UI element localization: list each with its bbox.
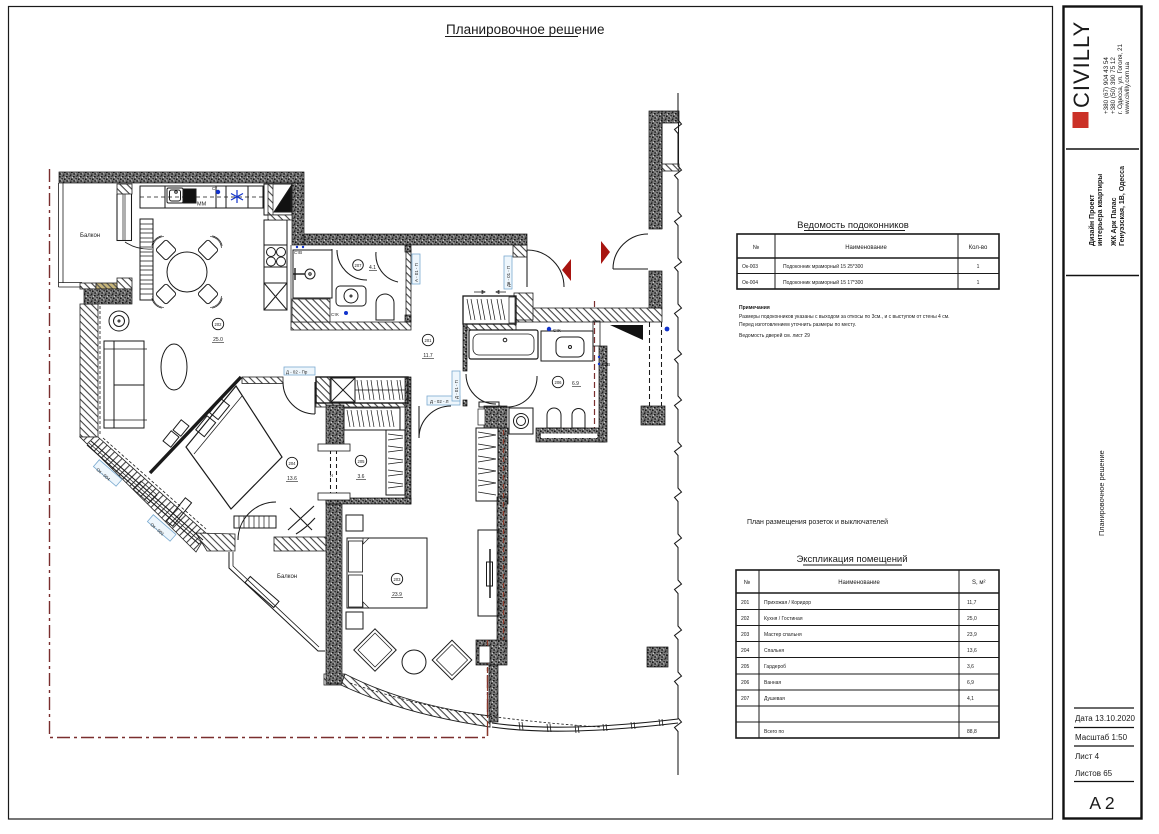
svg-text:Перед изготовлением уточнить р: Перед изготовлением уточнить размеры по … [739,322,856,328]
svg-text:13.6: 13.6 [287,476,297,482]
svg-text:Наименование: Наименование [838,580,880,586]
svg-text:№: № [744,579,750,586]
svg-text:www.civilly.com.ua: www.civilly.com.ua [1124,61,1131,115]
svg-text:СтВ: СтВ [602,362,610,367]
svg-text:202: 202 [741,616,750,622]
svg-text:207: 207 [355,263,363,268]
svg-text:Планировочное решение: Планировочное решение [446,22,604,37]
svg-text:Наименование: Наименование [845,245,887,251]
svg-text:205: 205 [741,664,750,670]
svg-text:206: 206 [741,680,750,686]
svg-text:1: 1 [977,280,980,286]
svg-text:Ведомость подоконников: Ведомость подоконников [797,220,909,231]
svg-text:Масштаб 1:50: Масштаб 1:50 [1075,733,1128,742]
svg-text:203: 203 [394,577,402,582]
svg-text:СтК: СтК [553,328,561,333]
svg-text:Ок-003: Ок-003 [742,264,758,270]
svg-text:Балкон: Балкон [277,574,297,580]
svg-text:3.6: 3.6 [358,474,365,480]
svg-text:Д - 01 - П: Д - 01 - П [454,380,459,399]
svg-text:Ст: Ст [212,186,217,191]
svg-text:Дата 13.10.2020: Дата 13.10.2020 [1075,714,1136,723]
svg-text:н: н [330,473,333,479]
svg-text:Размеры подоконников указаны с: Размеры подоконников указаны с выходом з… [739,314,950,320]
svg-text:203: 203 [741,632,750,638]
svg-text:88,8: 88,8 [967,729,977,735]
svg-text:1: 1 [977,264,980,270]
svg-text:4.1: 4.1 [369,265,376,271]
svg-text:ЖК Арк Палас: ЖК Арк Палас [1111,197,1118,247]
svg-text:11.7: 11.7 [423,353,433,359]
svg-text:Дв - 01 - П: Дв - 01 - П [506,266,511,287]
svg-text:25.0: 25.0 [213,337,223,343]
svg-text:Ведомость дверей см. лист 29: Ведомость дверей см. лист 29 [739,332,810,339]
svg-text:ММ: ММ [197,202,207,208]
svg-text:Душевая: Душевая [764,696,785,702]
svg-text:Гардероб: Гардероб [764,664,786,670]
svg-text:A 2: A 2 [1089,793,1114,813]
svg-text:206: 206 [555,380,563,385]
svg-text:202: 202 [215,322,223,327]
svg-text:207: 207 [741,696,750,702]
svg-text:11,7: 11,7 [967,600,977,606]
svg-text:23,9: 23,9 [967,632,977,638]
svg-text:План размещения розеток и выкл: План размещения розеток и выключателей [747,518,888,526]
svg-text:Планировочное решение: Планировочное решение [1097,450,1106,536]
svg-text:СтВ: СтВ [294,250,302,255]
svg-text:Листов 65: Листов 65 [1075,769,1113,778]
svg-text:204: 204 [741,648,750,654]
svg-text:3,6: 3,6 [967,664,974,670]
svg-text:Ванная: Ванная [764,680,781,686]
svg-text:Кол-во: Кол-во [969,245,988,251]
svg-text:Лист 4: Лист 4 [1075,752,1100,761]
svg-text:13,6: 13,6 [967,648,977,654]
svg-text:201: 201 [425,338,433,343]
svg-text:Балкон: Балкон [80,233,100,239]
svg-text:23.9: 23.9 [392,592,402,598]
svg-text:Всего по: Всего по [764,729,784,735]
svg-text:Д - 02 - Пр: Д - 02 - Пр [286,370,308,375]
svg-text:А - 01 - П: А - 01 - П [414,263,419,282]
svg-text:Генуэзская, 1В, Одесса: Генуэзская, 1В, Одесса [1119,166,1126,246]
svg-text:г. Одесса, ул. Гоголя, 21: г. Одесса, ул. Гоголя, 21 [1117,43,1124,114]
svg-text:интерьера квартиры: интерьера квартиры [1097,174,1104,246]
svg-text:CIVILLY: CIVILLY [1069,21,1094,108]
svg-text:205: 205 [358,459,366,464]
svg-text:СтК: СтК [331,312,339,317]
svg-text:4,1: 4,1 [967,696,974,702]
svg-text:Кухня / Гостиная: Кухня / Гостиная [764,616,803,622]
svg-text:Экспликация помещений: Экспликация помещений [796,554,907,565]
svg-text:6.9: 6.9 [572,381,579,387]
svg-text:201: 201 [741,600,750,606]
svg-text:Подоконник мраморный 15 25*300: Подоконник мраморный 15 25*300 [783,263,863,270]
svg-text:204: 204 [289,461,297,466]
svg-text:Д - 02 - Л: Д - 02 - Л [430,399,449,404]
svg-text:Мастер спальня: Мастер спальня [764,632,802,638]
svg-text:№: № [753,244,759,251]
svg-text:Подоконник мраморный 15 17*300: Подоконник мраморный 15 17*300 [783,279,863,286]
svg-text:Дизайн Проект: Дизайн Проект [1088,194,1096,246]
svg-text:Спальня: Спальня [764,648,784,654]
svg-text:Ок-004: Ок-004 [742,280,758,286]
svg-text:+380 (67) 904 43 54: +380 (67) 904 43 54 [1103,57,1110,114]
svg-text:S, м²: S, м² [972,580,985,586]
svg-text:+380 (50) 390 75 12: +380 (50) 390 75 12 [1110,57,1117,114]
svg-text:25,0: 25,0 [967,616,977,622]
svg-text:Примечания: Примечания [739,305,770,311]
svg-text:Прихожая / Коридор: Прихожая / Коридор [764,600,811,606]
svg-text:6,9: 6,9 [967,680,974,686]
